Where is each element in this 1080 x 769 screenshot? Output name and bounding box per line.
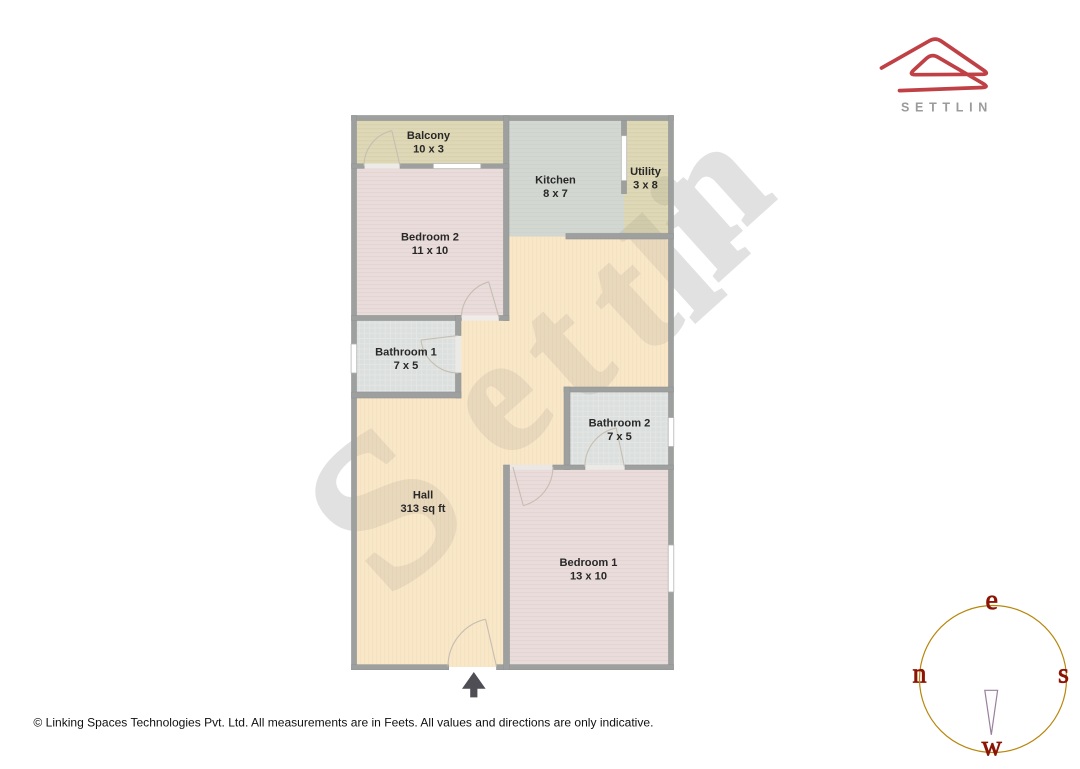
svg-text:n: n <box>913 659 927 690</box>
svg-text:s: s <box>1058 659 1069 690</box>
svg-text:Utility3 x 8: Utility3 x 8 <box>630 166 662 192</box>
svg-text:© Linking Spaces Technologies: © Linking Spaces Technologies Pvt. Ltd. … <box>33 716 653 730</box>
svg-text:SETTLIN: SETTLIN <box>901 101 993 115</box>
svg-text:w: w <box>982 731 1003 762</box>
svg-text:e: e <box>985 585 997 616</box>
